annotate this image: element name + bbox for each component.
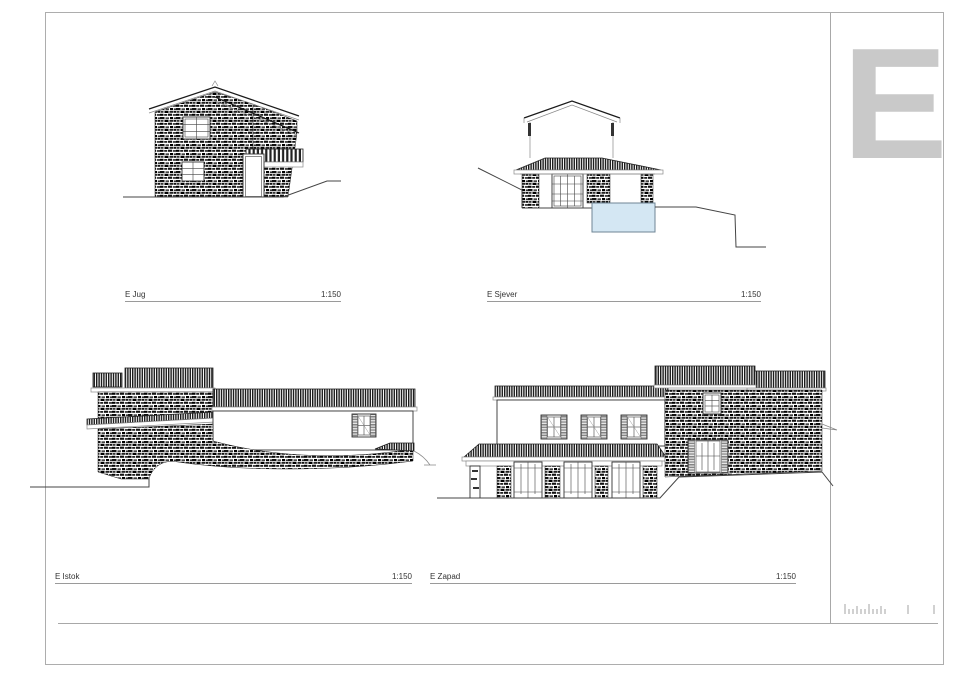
jug-ridge-finial [212, 81, 218, 86]
label-row-jug: E Jug 1:150 [125, 289, 341, 302]
elevation-istok-drawing [30, 368, 436, 487]
label-row-istok: E Istok 1:150 [55, 571, 412, 584]
jug-entry-door [243, 154, 264, 197]
jug-lower-window [182, 162, 204, 181]
sjever-stone-pier-left [522, 174, 539, 208]
label-row-zapad: E Zapad 1:150 [430, 571, 796, 584]
istok-roof-band-long [213, 389, 415, 407]
zapad-window-1 [541, 415, 567, 439]
jug-upper-window [183, 117, 210, 139]
istok-roof-band-upper [125, 368, 213, 388]
zapad-pier-4 [643, 466, 657, 498]
elevation-scale: 1:150 [776, 572, 796, 581]
zapad-window-3 [621, 415, 647, 439]
elevation-label: E Sjever [487, 290, 517, 299]
sjever-glazed-door [552, 174, 583, 208]
zapad-porch-door-3 [612, 462, 640, 498]
graphic-scale-bar [845, 604, 934, 614]
zapad-pier-1 [497, 466, 511, 498]
zapad-tower-roof-left [655, 366, 755, 385]
sjever-pool [592, 203, 655, 232]
elevation-label: E Zapad [430, 572, 460, 581]
zapad-tower-door [688, 440, 728, 473]
sjever-roof-fascia [514, 170, 663, 174]
elevation-scale: 1:150 [321, 290, 341, 299]
istok-white-wall [213, 411, 413, 450]
elevation-zapad-drawing [437, 366, 837, 498]
istok-window [352, 414, 376, 437]
elevation-sjever-drawing [478, 101, 766, 247]
zapad-tower-window [703, 393, 721, 414]
zapad-tower-roof-right [748, 371, 825, 388]
zapad-porch-door-1 [514, 462, 542, 498]
zapad-pier-3 [595, 466, 608, 498]
elevation-label: E Istok [55, 572, 79, 581]
elevation-scale: 1:150 [741, 290, 761, 299]
sjever-upper-storey-outline [524, 101, 620, 158]
label-row-sjever: E Sjever 1:150 [487, 289, 761, 302]
elevation-scale: 1:150 [392, 572, 412, 581]
sjever-roof [516, 158, 661, 170]
drawing-sheet: E [0, 0, 960, 679]
zapad-porch-roof [464, 444, 666, 457]
zapad-scupper-detail [822, 424, 837, 430]
zapad-roof-band [495, 386, 668, 397]
zapad-pier-2 [545, 466, 560, 498]
elevation-label: E Jug [125, 290, 145, 299]
zapad-porch-column [470, 466, 480, 498]
sjever-stone-pier-middle [587, 174, 610, 203]
zapad-porch-door-2 [564, 462, 592, 498]
sjever-ground-right [655, 207, 766, 247]
elevation-jug-drawing [123, 81, 341, 197]
istok-roof-band-small [93, 373, 122, 387]
istok-ground-line [30, 479, 149, 487]
zapad-window-2 [581, 415, 607, 439]
